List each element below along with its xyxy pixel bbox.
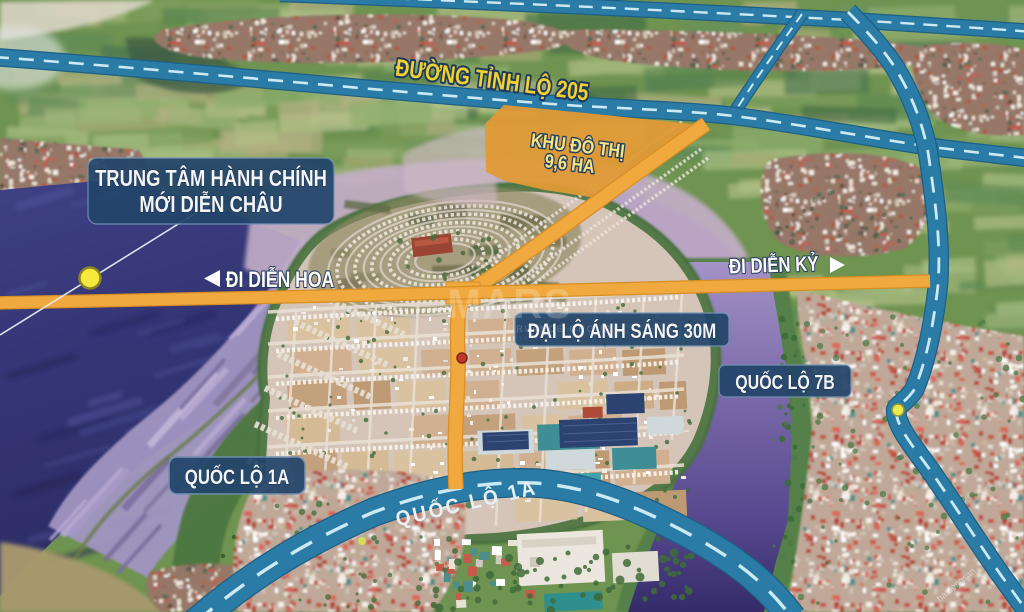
svg-text:ĐI DIỄN HOA: ĐI DIỄN HOA	[226, 267, 334, 292]
svg-text:QUỐC LỘ 7B: QUỐC LỘ 7B	[735, 370, 835, 393]
svg-text:TRUNG TÂM HÀNH CHÍNH: TRUNG TÂM HÀNH CHÍNH	[95, 165, 327, 192]
svg-text:QUỐC LỘ 1A: QUỐC LỘ 1A	[185, 465, 290, 489]
svg-text:MARS: MARS	[447, 280, 572, 327]
svg-text:DRVANCE GROUP: DRVANCE GROUP	[508, 324, 613, 334]
svg-text:MỚI DIỄN CHÂU: MỚI DIỄN CHÂU	[139, 191, 282, 218]
svg-text:ĐI DIỄN KỶ: ĐI DIỄN KỶ	[729, 252, 820, 279]
